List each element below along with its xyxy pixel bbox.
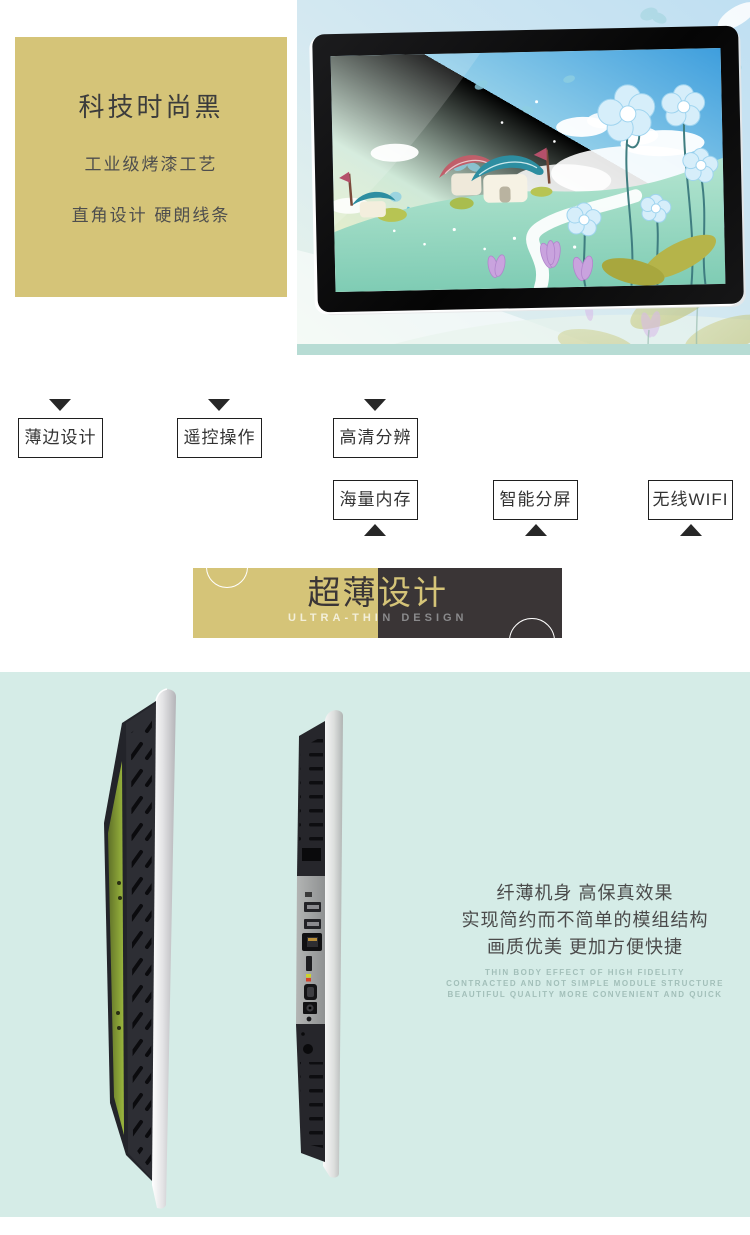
hero-subtitle-2: 直角设计 硬朗线条 — [15, 201, 287, 226]
banner-right-half: 超薄设计 ULTRA-THIN DESIGN — [378, 568, 563, 638]
banner-left-half: 超薄设计 ULTRA-THIN DESIGN — [193, 568, 378, 638]
product-photo — [297, 0, 750, 355]
wallpaper-illustration — [331, 48, 726, 292]
side-view-device-right — [283, 706, 353, 1184]
tablet-device — [312, 26, 744, 313]
feature-tag-thin-edge: 薄边设计 — [18, 418, 103, 458]
thin-body-section: 纤薄机身 高保真效果 实现简约而不简单的模组结构 画质优美 更加方便快捷 THI… — [0, 672, 750, 1217]
thin-en-line-2: CONTRACTED AND NOT SIMPLE MODULE STRUCTU… — [420, 978, 750, 989]
feature-tag-large-memory: 海量内存 — [333, 480, 418, 520]
side-view-device-left — [96, 683, 181, 1211]
feature-tag-hd-resolution: 高清分辨 — [333, 418, 418, 458]
arrow-down-icon — [208, 399, 230, 411]
thin-body-copy: 纤薄机身 高保真效果 实现简约而不简单的模组结构 画质优美 更加方便快捷 THI… — [420, 880, 750, 1000]
arrow-up-icon — [364, 524, 386, 536]
thin-cn-line-3: 画质优美 更加方便快捷 — [420, 934, 750, 961]
thin-cn-line-1: 纤薄机身 高保真效果 — [420, 880, 750, 907]
hero-title: 科技时尚黑 — [15, 87, 287, 124]
arrow-up-icon — [680, 524, 702, 536]
tablet-screen — [331, 48, 726, 292]
product-detail-page: 科技时尚黑 工业级烤漆工艺 直角设计 硬朗线条 — [0, 0, 750, 1235]
hero-subtitle-1: 工业级烤漆工艺 — [15, 150, 287, 175]
banner-subtitle: ULTRA-THIN DESIGN — [193, 612, 378, 624]
thin-en-line-3: BEAUTIFUL QUALITY MORE CONVENIENT AND QU… — [420, 989, 750, 1000]
hero-panel: 科技时尚黑 工业级烤漆工艺 直角设计 硬朗线条 — [15, 37, 287, 297]
banner-title: 超薄设计 — [378, 576, 563, 610]
feature-tag-wireless-wifi: 无线WIFI — [648, 480, 733, 520]
arrow-down-icon — [364, 399, 386, 411]
thin-en-line-1: THIN BODY EFFECT OF HIGH FIDELITY — [420, 967, 750, 978]
feature-tag-remote-control: 遥控操作 — [177, 418, 262, 458]
feature-tag-smart-split-screen: 智能分屏 — [493, 480, 578, 520]
arrow-down-icon — [49, 399, 71, 411]
arrow-up-icon — [525, 524, 547, 536]
thin-cn-line-2: 实现简约而不简单的模组结构 — [420, 907, 750, 934]
ultra-thin-banner: 超薄设计 ULTRA-THIN DESIGN 超薄设计 ULTRA-THIN D… — [193, 568, 562, 638]
